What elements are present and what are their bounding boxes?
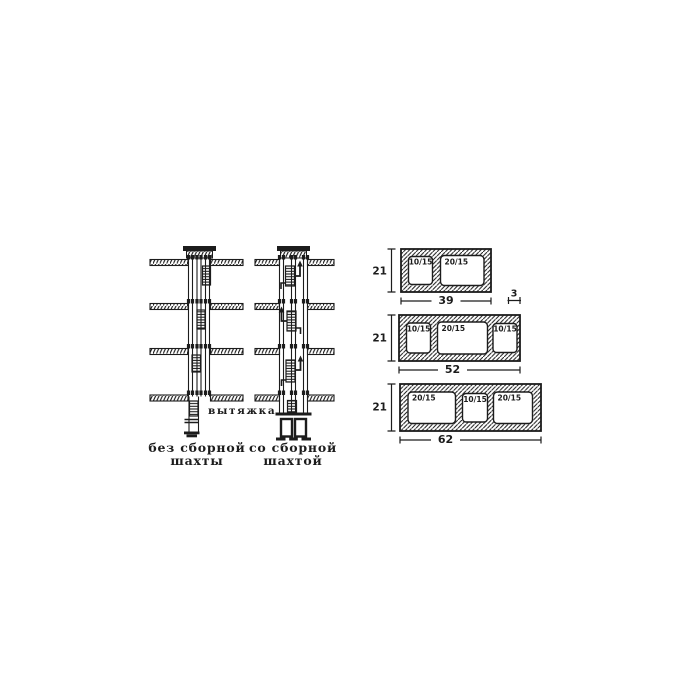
dim-width-62: 62	[400, 433, 541, 446]
vent-unit-4	[288, 401, 297, 413]
duct-end-cap	[184, 432, 200, 435]
vent-unit-2	[279, 307, 301, 335]
vent-block-39: 10/15 20/15 21 39 3	[372, 249, 521, 307]
opening-label: 20/15	[442, 324, 466, 333]
opening-label: 10/15	[463, 395, 487, 404]
caption-with-shaft-line2: шахтой	[263, 453, 322, 468]
dim-height-21: 21	[372, 249, 395, 292]
vent-unit-3	[282, 356, 304, 387]
svg-text:52: 52	[445, 363, 460, 376]
vent-block-52: 10/15 20/15 10/15 21 52	[372, 315, 520, 376]
svg-text:39: 39	[438, 294, 453, 307]
shaft-footing	[276, 413, 312, 441]
dim-wall-3: 3	[508, 289, 522, 305]
shaft-with-collector: со сборной шахтой	[249, 246, 337, 468]
opening-label: 10/15	[409, 258, 433, 267]
shaft-cap-plate	[277, 246, 310, 251]
opening-label: 20/15	[412, 394, 436, 403]
svg-text:21: 21	[372, 333, 387, 345]
scanned-figure-page: вытяжка без сборной шахты	[0, 0, 700, 700]
svg-text:21: 21	[372, 266, 387, 278]
flow-arrow-icon	[298, 356, 304, 362]
duct-coupling	[185, 420, 200, 423]
opening-label: 20/15	[445, 258, 469, 267]
svg-text:62: 62	[438, 433, 453, 446]
opening-label: 10/15	[407, 325, 431, 334]
exhaust-label: вытяжка	[208, 405, 276, 417]
svg-text:21: 21	[372, 402, 387, 414]
vent-block-62: 20/15 10/15 20/15 21 62	[372, 384, 541, 446]
shaft-cap-plate	[183, 246, 216, 251]
shaft-without-collector: вытяжка без сборной шахты	[148, 246, 276, 468]
caption-without-shaft-line2: шахты	[170, 453, 223, 468]
flow-arrow-icon	[297, 261, 303, 267]
dim-width-52: 52	[399, 363, 520, 376]
dim-width-39: 39	[401, 294, 491, 307]
ventilation-diagram: вытяжка без сборной шахты	[0, 0, 700, 700]
opening-label: 10/15	[493, 325, 517, 334]
opening-label: 20/15	[498, 394, 522, 403]
duct-end-cap	[187, 435, 198, 438]
svg-text:3: 3	[511, 289, 518, 300]
dim-height-21: 21	[372, 384, 395, 431]
dim-height-21: 21	[372, 315, 395, 361]
